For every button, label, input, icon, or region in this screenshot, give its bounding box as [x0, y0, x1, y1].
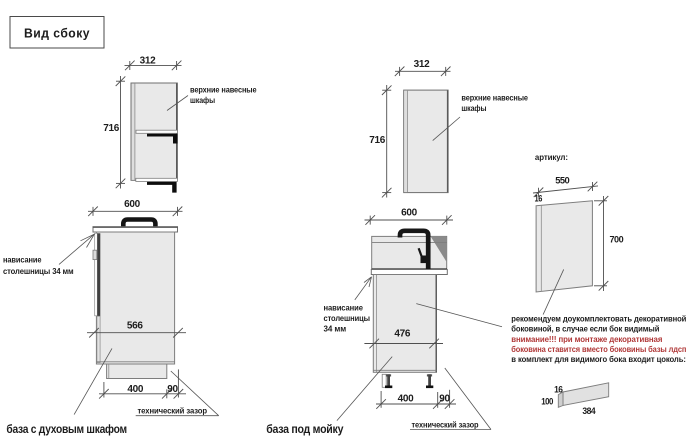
- svg-text:566: 566: [127, 321, 144, 332]
- svg-text:шкафы: шкафы: [190, 96, 215, 105]
- svg-text:рекомендуем доукомплектовать д: рекомендуем доукомплектовать декоративно…: [511, 315, 686, 324]
- svg-text:боковиной, в случае если бок в: боковиной, в случае если бок видимый: [511, 325, 659, 334]
- svg-text:артикул:: артикул:: [535, 153, 568, 162]
- svg-text:716: 716: [369, 135, 386, 146]
- svg-text:400: 400: [398, 393, 415, 404]
- svg-text:нависание: нависание: [3, 256, 42, 265]
- svg-text:312: 312: [140, 56, 157, 67]
- svg-text:600: 600: [124, 199, 141, 210]
- svg-text:16: 16: [554, 385, 563, 396]
- svg-text:столешницы: столешницы: [324, 314, 371, 323]
- svg-text:технический зазор: технический зазор: [412, 420, 479, 429]
- svg-text:400: 400: [127, 384, 144, 395]
- svg-text:700: 700: [610, 234, 624, 245]
- svg-text:16: 16: [535, 194, 543, 205]
- svg-text:100: 100: [541, 396, 553, 407]
- svg-text:технический зазор: технический зазор: [138, 406, 208, 415]
- svg-text:база с духовым шкафом: база с духовым шкафом: [6, 422, 127, 436]
- svg-text:550: 550: [555, 176, 569, 187]
- svg-text:600: 600: [401, 208, 418, 219]
- svg-text:боковина ставится вместо боков: боковина ставится вместо боковины базы л…: [511, 345, 686, 354]
- svg-text:34 мм: 34 мм: [324, 325, 347, 334]
- svg-text:90: 90: [439, 393, 450, 404]
- svg-text:Вид сбоку: Вид сбоку: [24, 26, 90, 41]
- svg-text:90: 90: [167, 384, 178, 395]
- svg-text:верхние навесные: верхние навесные: [461, 94, 528, 103]
- svg-text:312: 312: [414, 59, 431, 70]
- svg-text:шкафы: шкафы: [461, 104, 486, 113]
- svg-text:база под мойку: база под мойку: [266, 422, 344, 436]
- svg-text:верхние навесные: верхние навесные: [190, 86, 257, 95]
- svg-text:столешницы 34 мм: столешницы 34 мм: [3, 267, 74, 276]
- svg-text:нависание: нависание: [324, 304, 364, 313]
- svg-text:в комплект для видимого бока в: в комплект для видимого бока входит цоко…: [511, 355, 686, 364]
- svg-text:384: 384: [582, 406, 596, 417]
- svg-text:476: 476: [394, 329, 411, 340]
- svg-text:716: 716: [103, 123, 120, 134]
- svg-text:внимание!!! при монтаже декора: внимание!!! при монтаже декоративная: [511, 335, 662, 344]
